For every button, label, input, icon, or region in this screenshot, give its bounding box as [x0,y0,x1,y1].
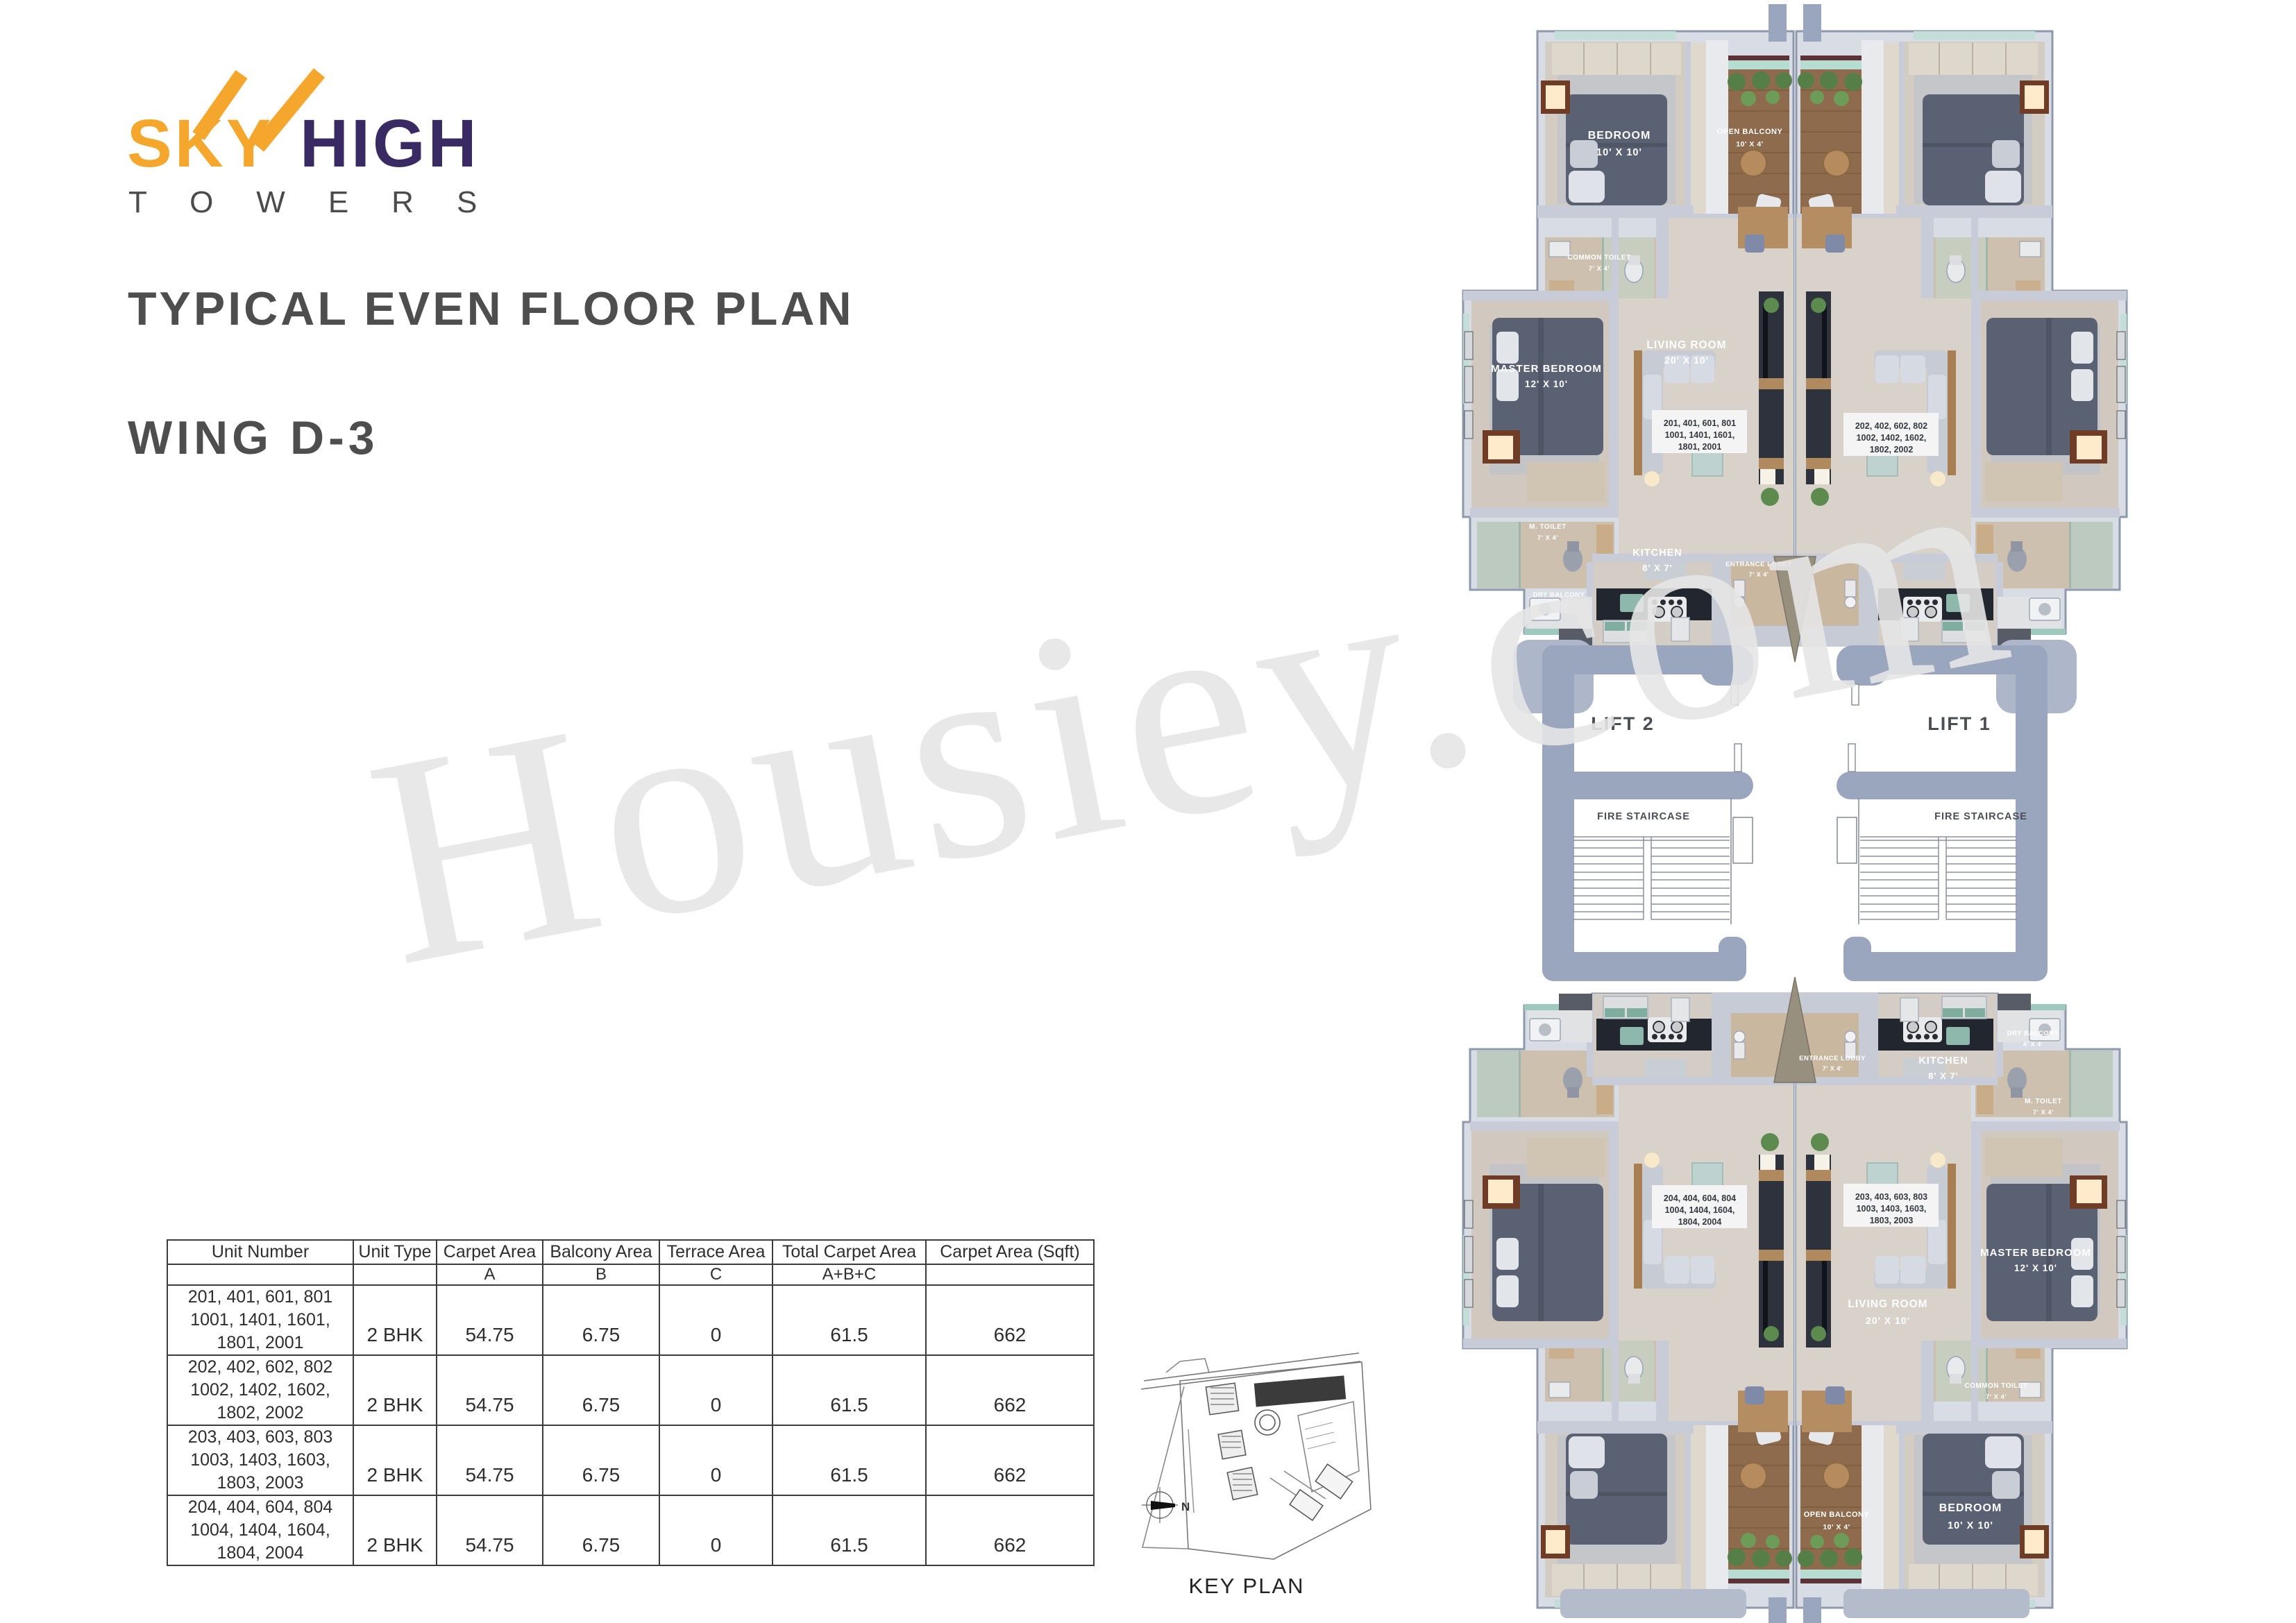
svg-text:8' X 7': 8' X 7' [1928,1071,1959,1081]
svg-text:LIVING ROOM: LIVING ROOM [1848,1298,1927,1310]
svg-text:203, 403, 603, 803: 203, 403, 603, 803 [1855,1192,1927,1202]
svg-text:10' X 10': 10' X 10' [1948,1520,1993,1531]
svg-text:COMMON TOILET: COMMON TOILET [1964,1382,2027,1390]
svg-text:TOWERS: TOWERS [128,185,520,219]
svg-text:204, 404, 604, 804: 204, 404, 604, 804 [1664,1193,1736,1203]
svg-text:OPEN BALCONY: OPEN BALCONY [1804,1511,1870,1519]
svg-text:DRY BALCONY: DRY BALCONY [2007,1030,2059,1037]
svg-text:BEDROOM: BEDROOM [1939,1502,2002,1514]
svg-text:BEDROOM: BEDROOM [1588,130,1651,142]
svg-text:7' X 4': 7' X 4' [1986,1393,2007,1401]
svg-text:SKY: SKY [127,105,273,181]
svg-text:WING D-3: WING D-3 [128,411,379,464]
svg-text:4' X 4': 4' X 4' [2023,1041,2043,1048]
svg-text:1001, 1401, 1601,: 1001, 1401, 1601, [1665,430,1735,440]
svg-text:7' X 4': 7' X 4' [2033,1109,2054,1116]
svg-text:MASTER BEDROOM: MASTER BEDROOM [1980,1247,2091,1259]
svg-text:10' X 4': 10' X 4' [1823,1523,1850,1531]
svg-text:7' X 4': 7' X 4' [1823,1065,1843,1072]
svg-text:FIRE STAIRCASE: FIRE STAIRCASE [1934,811,2027,822]
svg-text:1003, 1403, 1603,: 1003, 1403, 1603, [1857,1204,1927,1214]
svg-text:FIRE STAIRCASE: FIRE STAIRCASE [1597,811,1690,822]
svg-text:N: N [1181,1500,1190,1513]
svg-text:20' X 10': 20' X 10' [1866,1315,1910,1326]
svg-text:20' X 10': 20' X 10' [1664,355,1709,366]
svg-text:M. TOILET: M. TOILET [2025,1098,2062,1105]
svg-text:Housiey.com: Housiey.com [348,394,2036,1029]
svg-text:7' X 4': 7' X 4' [1589,265,1610,273]
svg-text:KEY PLAN: KEY PLAN [1188,1574,1304,1598]
svg-text:MASTER BEDROOM: MASTER BEDROOM [1491,363,1602,375]
svg-text:1803, 2003: 1803, 2003 [1870,1216,1914,1225]
svg-text:OPEN BALCONY: OPEN BALCONY [1717,128,1783,136]
svg-text:10' X 4': 10' X 4' [1736,140,1763,148]
svg-text:1004, 1404, 1604,: 1004, 1404, 1604, [1665,1205,1735,1215]
svg-text:ENTRANCE LOBBY: ENTRANCE LOBBY [1799,1055,1866,1062]
svg-text:201, 401, 601, 801: 201, 401, 601, 801 [1664,418,1736,428]
svg-text:1804, 2004: 1804, 2004 [1678,1217,1722,1227]
svg-text:LIVING ROOM: LIVING ROOM [1646,339,1726,351]
svg-text:10' X 10': 10' X 10' [1596,147,1642,158]
svg-text:HIGH: HIGH [300,105,480,181]
svg-text:TYPICAL EVEN FLOOR PLAN: TYPICAL EVEN FLOOR PLAN [128,282,854,335]
svg-text:COMMON TOILET: COMMON TOILET [1567,254,1630,262]
svg-text:KITCHEN: KITCHEN [1918,1055,1968,1067]
svg-text:12' X 10': 12' X 10' [1525,379,1568,389]
svg-text:12' X 10': 12' X 10' [2014,1263,2057,1273]
